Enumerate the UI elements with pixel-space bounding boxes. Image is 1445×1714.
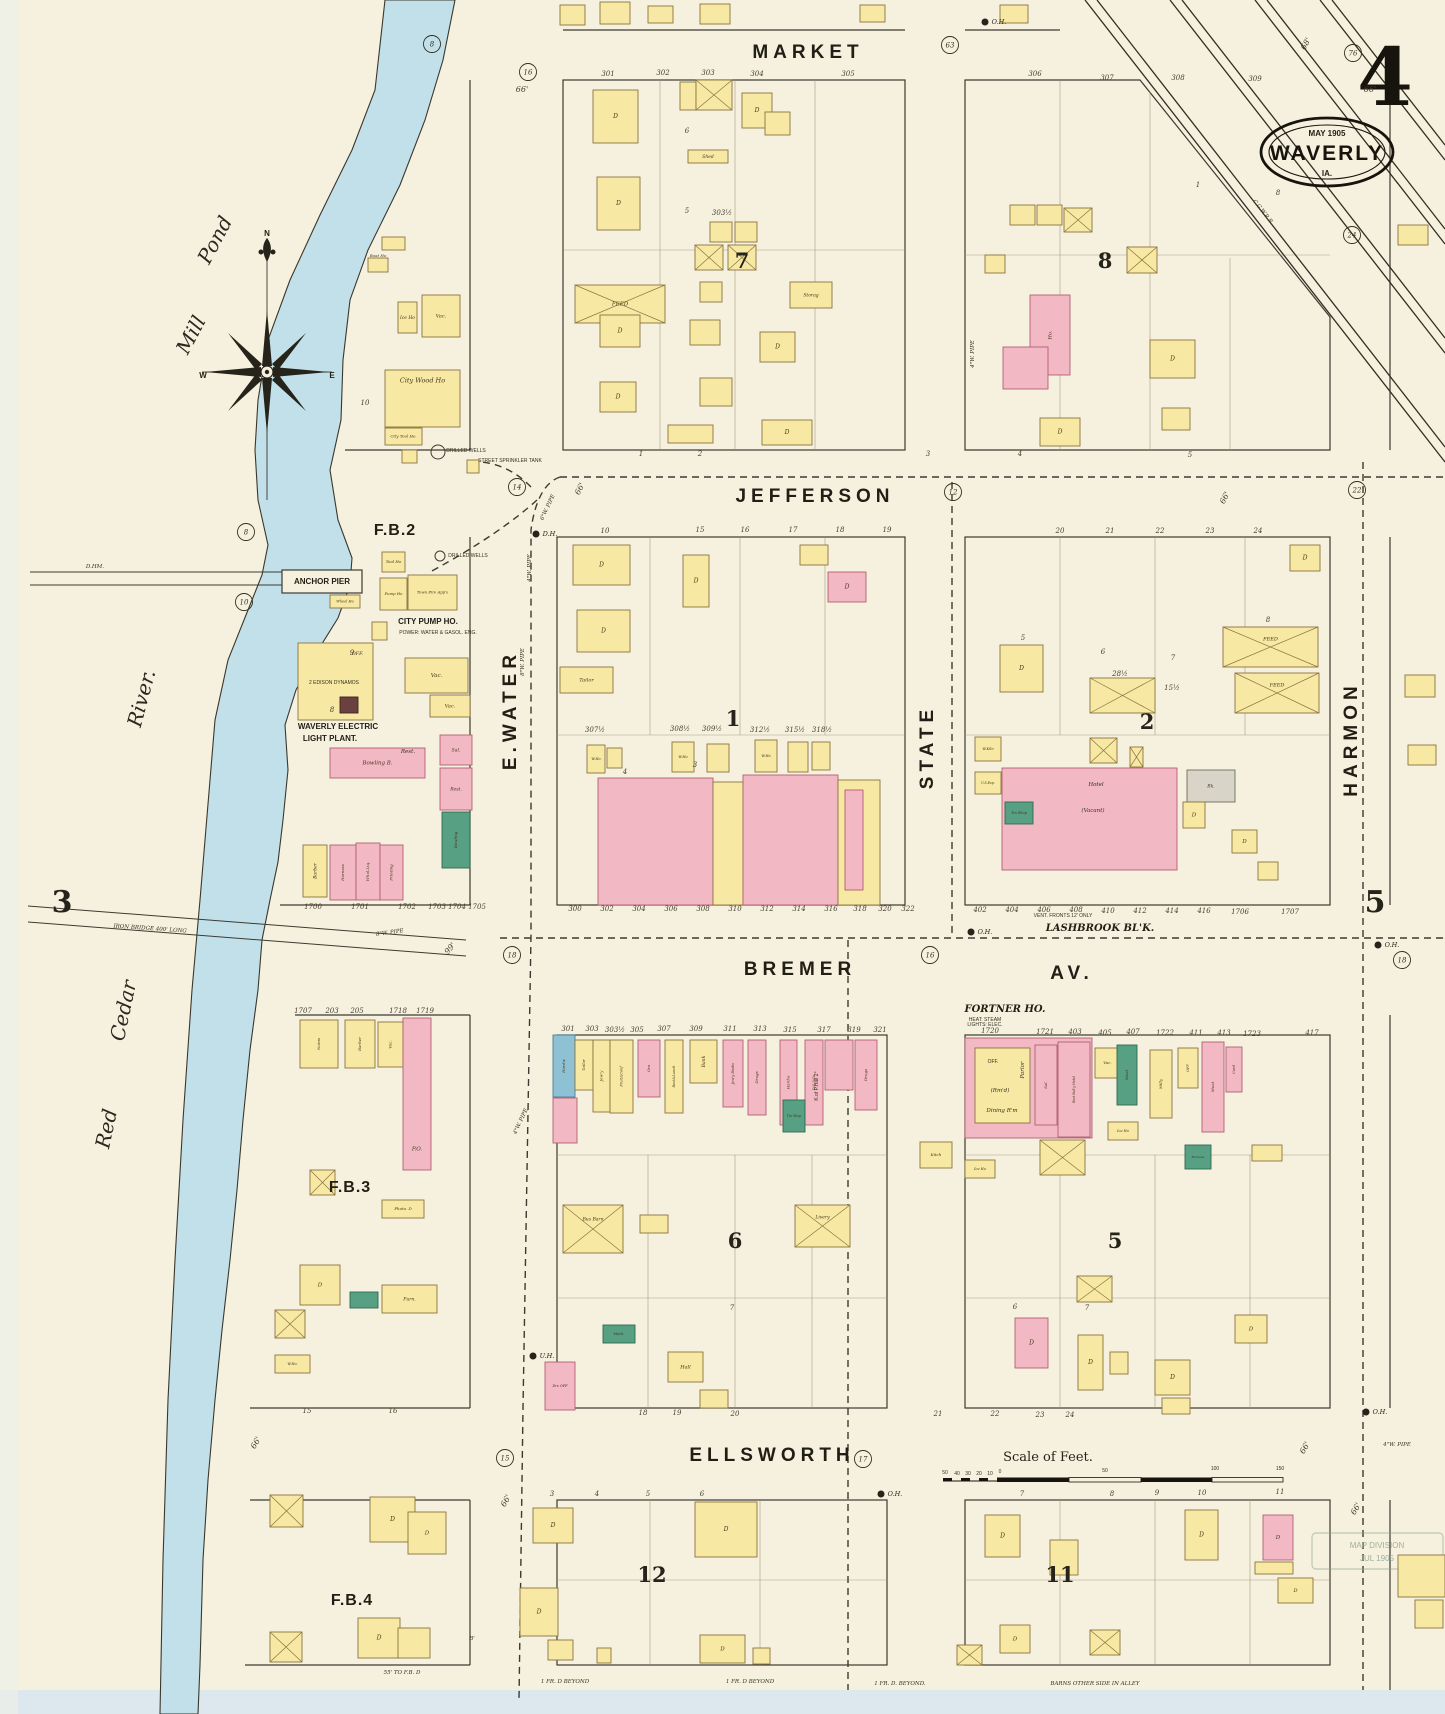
map-label: CITY PUMP HO. — [398, 617, 458, 626]
building — [690, 320, 720, 345]
building — [1003, 347, 1048, 389]
hydrant-icon — [878, 1491, 885, 1498]
map-label: 5 — [1021, 634, 1026, 642]
building-label: Boat Ho — [369, 253, 387, 258]
map-label: BARNS OTHER SIDE IN ALLEY — [1049, 1681, 1140, 1687]
map-label: ANCHOR PIER — [294, 577, 350, 586]
building-label: Harness — [1191, 1155, 1205, 1159]
map-label: 50 — [942, 1470, 948, 1476]
building-label: D — [1169, 1374, 1175, 1381]
map-label: 1 — [639, 450, 643, 458]
building-label: Milly — [1158, 1078, 1163, 1090]
building — [600, 2, 630, 24]
map-label: 5 — [646, 1490, 651, 1498]
map-label: 7 — [1085, 1304, 1090, 1312]
building — [985, 255, 1005, 273]
map-label: 15½ — [1164, 684, 1180, 692]
building-label: D — [1275, 1535, 1281, 1541]
map-label: 3 — [550, 1490, 555, 1498]
map-label: 18 — [836, 526, 845, 534]
map-label: STATE — [917, 705, 938, 789]
building-label: Shed — [702, 154, 714, 160]
building — [743, 775, 838, 905]
building-label: Jew'y Books — [731, 1063, 735, 1085]
map-label: 1704 — [448, 903, 466, 911]
building — [372, 622, 387, 640]
map-label: 303½ — [605, 1026, 625, 1034]
building — [800, 545, 828, 565]
building — [1110, 1352, 1128, 1374]
building-label: Livery — [814, 1215, 830, 1221]
map-label: 314 — [792, 905, 805, 913]
building-label: D — [424, 1531, 430, 1537]
building-label: D — [600, 628, 606, 635]
map-label: ELLSWORTH — [689, 1445, 854, 1466]
building-label: FEED — [1262, 637, 1278, 643]
map-label: 8 — [1110, 1490, 1115, 1498]
building-label: D — [615, 394, 621, 401]
map-label: OFF. — [988, 1059, 999, 1065]
building-label: Meat — [1124, 1069, 1129, 1081]
building-label: D — [1018, 665, 1024, 672]
map-label: 20 — [1055, 527, 1065, 535]
building — [350, 1292, 378, 1308]
building — [597, 1648, 611, 1663]
building-label: D — [598, 562, 604, 569]
map-label: 1723 — [1243, 1030, 1261, 1038]
map-label: 11 — [1045, 1562, 1074, 1587]
map-label: 312½ — [750, 726, 770, 734]
building-label: D — [999, 1533, 1005, 1540]
hydrant-label: O.H. — [992, 18, 1007, 26]
map-label: 6 — [700, 1490, 705, 1498]
building — [713, 782, 743, 905]
map-label: 100 — [1211, 1466, 1220, 1472]
building-label: U.S.Exp. — [981, 781, 995, 785]
building-label: D — [615, 200, 621, 207]
building — [1415, 1600, 1443, 1628]
map-label: B' — [468, 1636, 475, 1642]
map-label: LIGHT PLANT. — [303, 734, 357, 743]
map-label: STREET SPRINKLER TANK — [478, 458, 542, 464]
building-label: D — [536, 1609, 542, 1616]
map-label: 16 — [741, 526, 750, 534]
building-label: Tailor — [581, 1058, 586, 1071]
building-label: FEED — [1269, 683, 1285, 689]
building-label: Rest&Lunch — [672, 1065, 676, 1088]
map-label: 304 — [750, 70, 763, 78]
building-label: W.Ho — [678, 755, 687, 759]
map-label: 6 — [1013, 1303, 1018, 1311]
building-label: D — [719, 1647, 725, 1653]
building-label: D — [754, 107, 760, 114]
map-label: 5 — [1108, 1228, 1123, 1253]
circled-number-text: 24 — [1347, 232, 1357, 240]
map-label: 8"W. PIPE — [520, 648, 526, 676]
circled-number-text: 12 — [949, 489, 958, 497]
building-label: D — [723, 1526, 729, 1533]
map-label: 10 — [361, 399, 370, 407]
hydrant-icon — [533, 531, 540, 538]
building-label: Bus Barn — [582, 1217, 604, 1223]
map-label: 413 — [1216, 1029, 1231, 1037]
building-label: D — [317, 1283, 323, 1289]
building-label: Bowling — [453, 831, 458, 849]
building-label: Meat — [1210, 1081, 1215, 1093]
building-label: OFF — [1186, 1064, 1190, 1072]
building-label: D — [784, 429, 790, 436]
map-label: 10 — [601, 527, 610, 535]
building — [1162, 408, 1190, 430]
map-label: 5 — [685, 207, 690, 215]
building-label: Town Fire App's — [417, 590, 448, 595]
building — [700, 378, 732, 406]
map-label: 305 — [841, 70, 855, 78]
building — [700, 1390, 728, 1408]
map-label: 313 — [753, 1025, 767, 1033]
map-label: AV. — [1050, 963, 1094, 984]
map-label: 308½ — [670, 725, 690, 733]
map-label: 309 — [1248, 75, 1262, 83]
building-label: Photo. D — [393, 1206, 412, 1211]
building-label: City Tool Ho. — [390, 434, 416, 439]
building-label: D — [1292, 1588, 1297, 1594]
map-label: 311 — [723, 1025, 736, 1033]
building-label: W.Ho — [591, 757, 600, 761]
map-label: 404 — [1004, 906, 1018, 914]
map-label: 15 — [696, 526, 705, 534]
map-label: FORTNER HO. — [964, 1004, 1046, 1015]
map-label: 316 — [824, 905, 838, 913]
map-label: 1 — [1196, 181, 1200, 189]
map-label: 20 — [976, 1471, 982, 1477]
map-label: Dining R'm — [985, 1108, 1017, 1114]
building — [648, 6, 673, 23]
map-label: 203 — [324, 1007, 339, 1015]
map-label: 10 — [1198, 1489, 1207, 1497]
map-label: 303 — [701, 69, 715, 77]
building-label: Ho. — [1048, 330, 1054, 340]
building — [700, 4, 730, 24]
map-label: 3 — [52, 885, 73, 920]
map-label: 8 — [1098, 248, 1113, 273]
sanborn-map-sheet: Boat HoIce HoVac.City Wood HoCity Tool H… — [0, 0, 1445, 1714]
map-label: 28½ — [1111, 670, 1128, 678]
hydrant-icon — [968, 929, 975, 936]
map-label: 50 — [1102, 1468, 1108, 1474]
map-label: DRILLED WELLS — [448, 553, 488, 559]
map-label: 310 — [728, 905, 742, 913]
map-label: 5 — [1365, 885, 1386, 920]
building — [707, 744, 729, 772]
map-label: Scale of Feet. — [1003, 1450, 1093, 1465]
map-label: 7 — [1171, 654, 1176, 662]
building — [398, 1628, 430, 1658]
map-label: 40 — [954, 1471, 960, 1477]
map-label: 3 — [926, 450, 931, 458]
building — [788, 742, 808, 772]
map-label: 19 — [883, 526, 892, 534]
map-label: 304 — [632, 905, 645, 913]
building — [598, 778, 713, 905]
map-label: 322 — [901, 905, 915, 913]
map-label: 406 — [1036, 906, 1051, 914]
building — [825, 1040, 853, 1090]
building-label: Tool Ho — [386, 559, 402, 564]
building-label: Wheel Ho — [336, 600, 353, 604]
map-label: 16 — [389, 1407, 398, 1415]
map-label: 318½ — [812, 726, 832, 734]
hydrant-icon — [1375, 942, 1382, 949]
hydrant-label: O.H. — [1385, 941, 1400, 949]
map-label: 1706 — [1231, 908, 1249, 916]
building — [1162, 1398, 1190, 1414]
hydrant-icon — [982, 19, 989, 26]
map-label: 1718 — [389, 1007, 407, 1015]
map-label: 309½ — [702, 725, 722, 733]
building — [700, 282, 722, 302]
map-label: 21 — [1105, 527, 1115, 535]
building-label: Notns — [316, 1038, 321, 1051]
building-label: Tin Shop — [1011, 811, 1028, 815]
map-label: 303½ — [712, 209, 732, 217]
map-label: MARKET — [752, 42, 863, 63]
map-label: 1701 — [351, 903, 369, 911]
building-label: D — [389, 1516, 395, 1523]
map-label: 8 — [1276, 189, 1281, 197]
map-label: 417 — [1304, 1029, 1319, 1037]
building-label: Rest. — [449, 787, 462, 793]
map-label: 8 — [330, 706, 335, 714]
building-label: D — [693, 578, 699, 585]
building — [607, 748, 622, 768]
map-label: 19 — [673, 1409, 682, 1417]
building-label: Hardw — [786, 1075, 791, 1090]
building-label: Hardw — [561, 1059, 566, 1074]
building — [560, 5, 585, 25]
map-label: 30 — [965, 1471, 971, 1477]
building-label: Tailor — [579, 678, 594, 684]
building-label: W.Ho. — [287, 1362, 297, 1366]
building-label: Drugs — [863, 1069, 868, 1082]
building-label: W.Ho — [761, 754, 770, 758]
building — [548, 1640, 573, 1660]
map-label: 307 — [657, 1025, 671, 1033]
circled-number-text: 18 — [508, 952, 517, 960]
map-label: 1 — [726, 706, 741, 731]
building-label: Mach. — [613, 1332, 625, 1336]
map-label: 320 — [878, 905, 892, 913]
map-label: 307½ — [585, 726, 605, 734]
map-label: 321 — [873, 1026, 886, 1034]
building-label: Ice Ho — [1116, 1129, 1129, 1133]
circled-number-text: 15 — [501, 1455, 510, 1463]
building — [668, 425, 713, 443]
hydrant-label: O.H. — [888, 1490, 903, 1498]
map-label: 1720 — [981, 1027, 999, 1035]
building-label: Kitch — [930, 1152, 942, 1157]
building — [680, 82, 696, 110]
map-label: 66' — [516, 85, 528, 94]
building-label: D — [1028, 1340, 1034, 1347]
map-label: 416 — [1196, 907, 1211, 915]
building — [382, 237, 405, 250]
building-label: P.O. — [411, 1147, 423, 1153]
map-label: 6 — [1101, 648, 1106, 656]
map-label: 414 — [1164, 907, 1178, 915]
building-label: D — [1057, 429, 1063, 436]
map-label: LASHBROOK BL'K. — [1045, 923, 1155, 934]
building — [1258, 862, 1278, 880]
map-label: 319 — [847, 1026, 861, 1034]
map-label: 66' — [1364, 85, 1376, 94]
map-label: Parlor — [1020, 1061, 1026, 1079]
map-label: 301 — [601, 70, 614, 78]
map-label: 405 — [1097, 1029, 1112, 1037]
building — [753, 1648, 770, 1664]
building-label: Bowling B. — [361, 761, 392, 767]
map-label: 1707 — [294, 1007, 312, 1015]
building — [1010, 205, 1035, 225]
map-label: 1703 — [428, 903, 446, 911]
hydrant-label: U.H. — [540, 1352, 555, 1360]
building — [1252, 1145, 1282, 1161]
building-label: D — [617, 328, 623, 335]
building — [1405, 675, 1435, 697]
circled-number-text: 8 — [430, 41, 435, 49]
building-label: Vac. — [1103, 1060, 1111, 1065]
map-label: 4"W. PIPE — [1382, 1442, 1411, 1448]
map-label: 4"W. PIPE — [527, 554, 533, 583]
map-label: 1 FR. D. BEYOND. — [874, 1681, 926, 1687]
building-label: Tin Shop — [787, 1114, 801, 1118]
map-label: (Rm'd) — [991, 1087, 1010, 1094]
building — [1037, 205, 1062, 225]
map-label: WAVERLY ELECTRIC — [298, 722, 379, 731]
map-label: 17 — [789, 526, 798, 534]
building — [1398, 225, 1428, 245]
building-label: W.Kiln — [982, 747, 994, 751]
map-label: 12 — [637, 1562, 666, 1587]
building — [735, 222, 757, 242]
building-label: D — [1012, 1637, 1018, 1643]
circled-number-text: 14 — [513, 484, 522, 492]
map-label: 308 — [1171, 74, 1185, 82]
map-label: 308 — [696, 905, 710, 913]
building-label: Bank — [701, 1055, 707, 1068]
map-label: 306 — [1028, 70, 1042, 78]
map-label: F.B.4 — [331, 1592, 373, 1609]
map-label: 412 — [1132, 907, 1147, 915]
map-label: E — [329, 371, 335, 380]
map-label: 6 — [685, 127, 690, 135]
map-label: 22 — [990, 1410, 1000, 1418]
map-label: 411 — [1188, 1029, 1202, 1037]
map-label: 305 — [630, 1026, 644, 1034]
building-label: Barber — [313, 862, 319, 880]
building — [368, 258, 388, 272]
building — [402, 450, 417, 463]
map-label: F.B.2 — [374, 522, 416, 539]
map-label: 2 — [697, 450, 703, 458]
map-label: DRILLED WELLS — [446, 448, 486, 454]
map-label: 309 — [689, 1025, 703, 1033]
building-label: D — [1191, 813, 1197, 819]
scan-margin-bottom — [0, 1690, 1445, 1714]
map-label: 4"W. PIPE — [970, 340, 976, 369]
map-label: 318 — [853, 905, 867, 913]
building-label: Furn. — [402, 1297, 416, 1303]
map-label: 306 — [664, 905, 678, 913]
building-label: FEED — [611, 302, 629, 308]
map-label: 5 — [1188, 451, 1193, 459]
building-label: City Wood Ho — [400, 377, 445, 385]
map-label: 2 — [1140, 709, 1155, 734]
map-label: 1 FR. D BEYOND — [541, 1679, 590, 1685]
map-label: 410 — [1100, 907, 1115, 915]
building-label: Vac. — [445, 704, 456, 710]
building-label: D — [550, 1522, 556, 1529]
map-label: 7 — [730, 1304, 735, 1312]
map-label: F.B.3 — [329, 1179, 371, 1196]
map-label: D.HM. — [85, 564, 104, 570]
building-label: Hall — [679, 1365, 691, 1371]
building-label: Fruit&Conf — [620, 1066, 624, 1088]
map-label: 6 — [728, 1228, 743, 1253]
map-label: 18 — [639, 1409, 648, 1417]
building-label: D — [1248, 1327, 1254, 1333]
circled-number-text: 10 — [240, 599, 249, 607]
map-label: 315 — [783, 1026, 797, 1034]
map-label: 407 — [1125, 1028, 1140, 1036]
map-label: 0 — [999, 1469, 1002, 1475]
map-label: 21 — [933, 1410, 943, 1418]
map-label: 8 — [1266, 616, 1271, 624]
hydrant-icon — [1363, 1409, 1370, 1416]
map-label: 150 — [1276, 1466, 1285, 1472]
building-label: Vac. — [431, 673, 443, 679]
map-label: 315½ — [785, 726, 805, 734]
building-label: Gro — [646, 1064, 651, 1072]
map-label: 23 — [1205, 527, 1215, 535]
building — [1398, 1555, 1445, 1597]
map-label: Hotel — [1087, 782, 1104, 788]
map-label: 1700 — [304, 903, 322, 911]
building — [860, 5, 885, 22]
building — [812, 742, 830, 770]
building — [710, 222, 732, 242]
circled-number-text: 22 — [1352, 487, 1362, 495]
building-label: Vac. — [436, 314, 447, 320]
map-label: 302 — [656, 69, 670, 77]
building-label: Rest Bak'y Hotel — [1072, 1076, 1076, 1104]
map-label: POWER: WATER & GASOL. ENG. — [399, 630, 477, 636]
map-label: 22 — [1155, 527, 1165, 535]
building-label: Harness — [340, 864, 345, 882]
map-label: 1721 — [1036, 1028, 1054, 1036]
building-label: Pump Ho — [384, 591, 404, 596]
map-label: 301 — [561, 1025, 574, 1033]
building-label: Ice Ho — [973, 1167, 986, 1171]
map-label: N — [264, 229, 270, 238]
hydrant-label: O.H. — [978, 928, 993, 936]
circled-number-text: 63 — [946, 42, 955, 50]
map-label: E.WATER — [500, 650, 521, 770]
map-label: 4 — [594, 1490, 599, 1498]
circled-number-text: 17 — [859, 1456, 868, 1464]
map-label: (Vacant) — [1081, 807, 1104, 814]
map-label: 307 — [1100, 74, 1114, 82]
